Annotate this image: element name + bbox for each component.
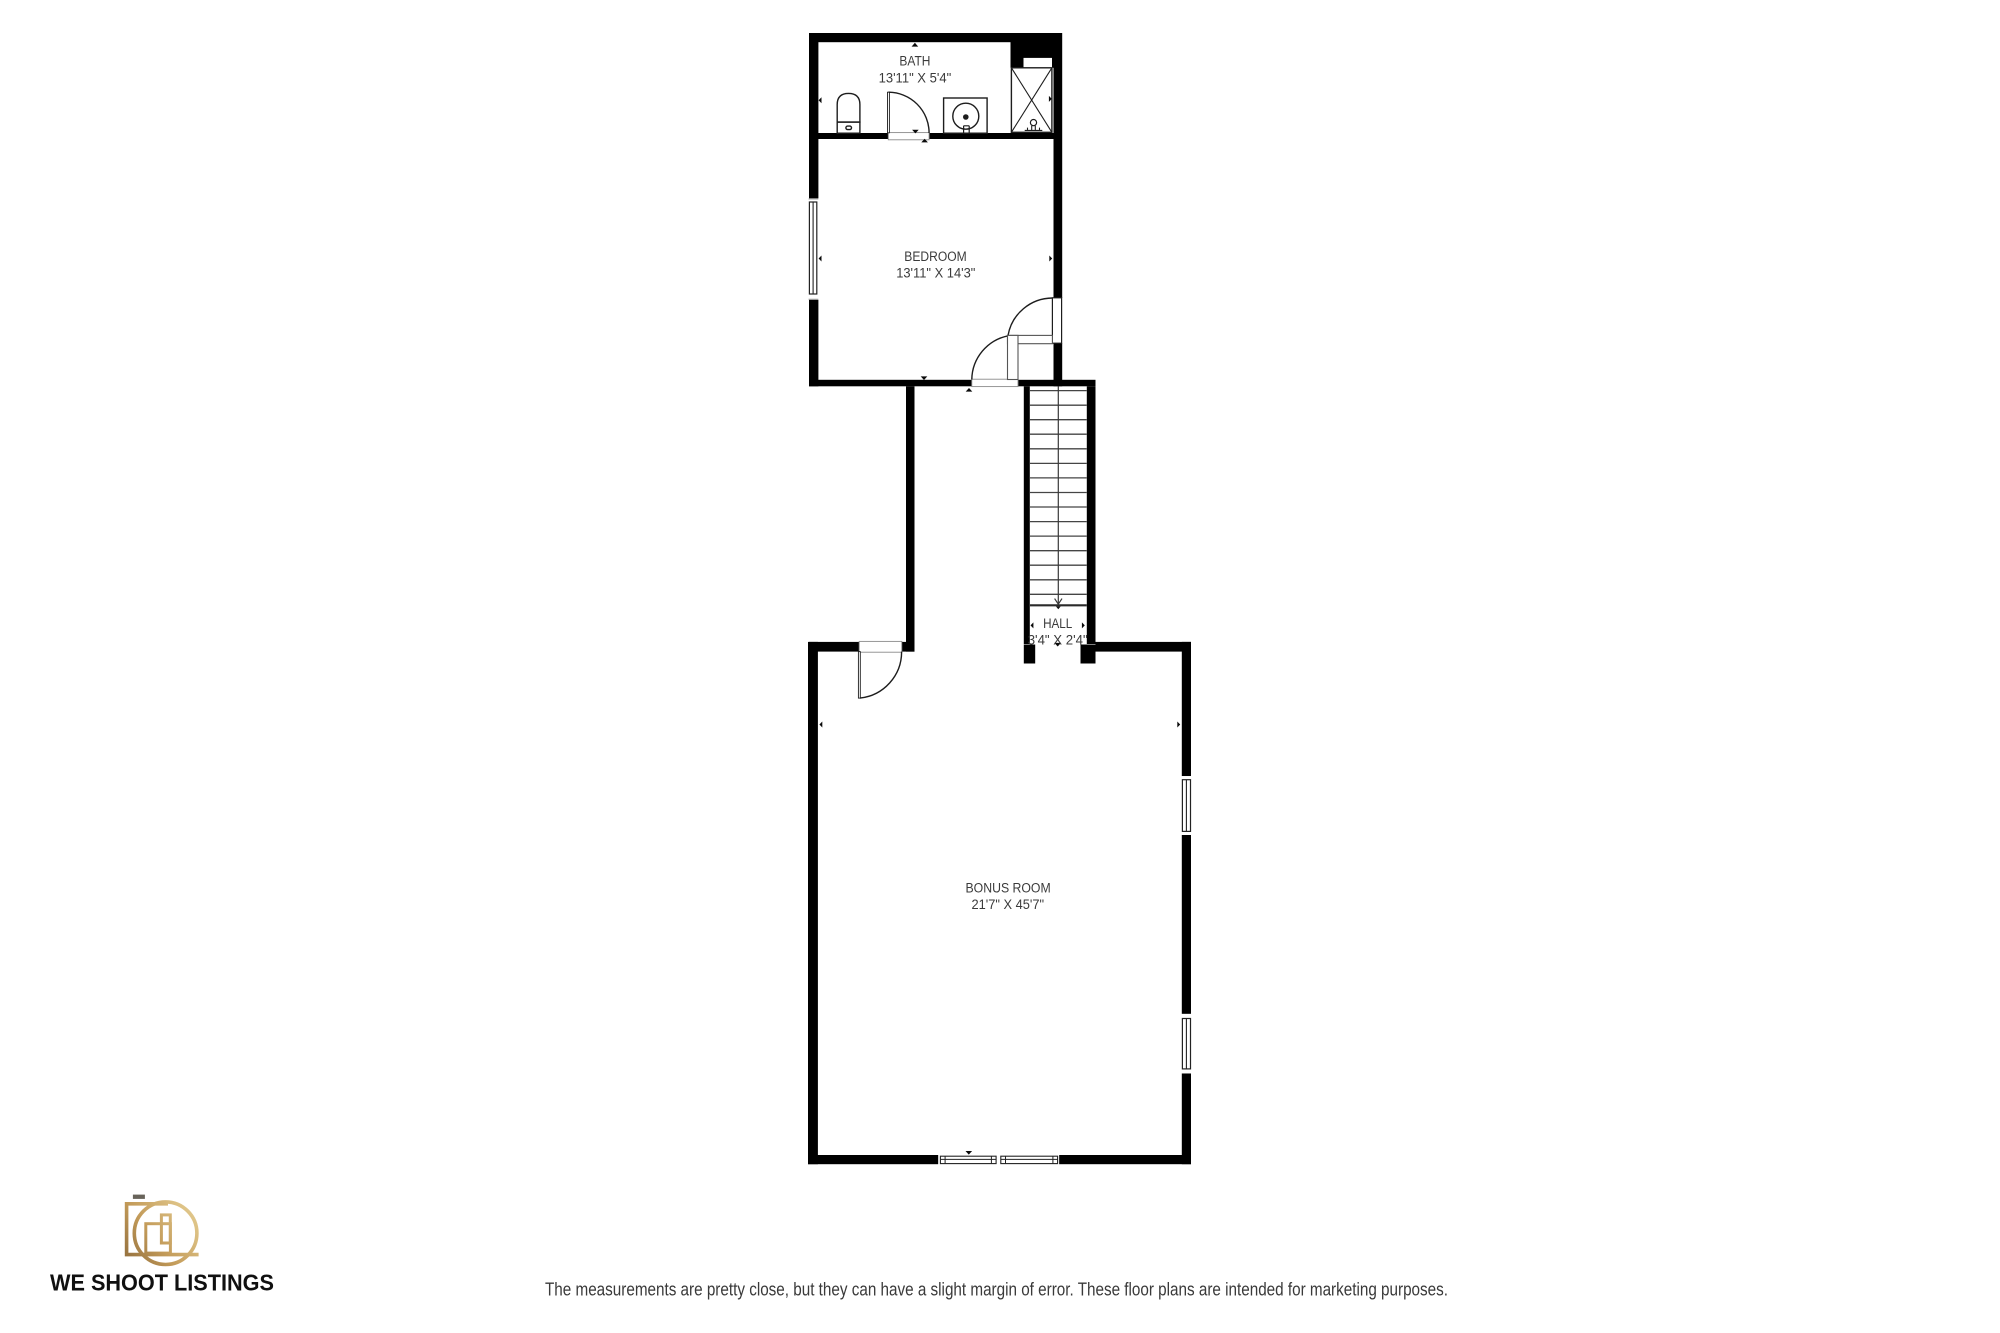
svg-text:WE SHOOT LISTINGS: WE SHOOT LISTINGS [50, 1270, 274, 1296]
svg-text:21'7" X 45'7": 21'7" X 45'7" [972, 897, 1045, 912]
svg-text:BATH: BATH [899, 54, 930, 69]
svg-text:BEDROOM: BEDROOM [904, 249, 966, 264]
svg-text:3'4" X 2'4": 3'4" X 2'4" [1028, 632, 1088, 647]
svg-text:BONUS ROOM: BONUS ROOM [966, 881, 1051, 896]
svg-text:13'11" X 14'3": 13'11" X 14'3" [896, 265, 975, 280]
svg-text:The measurements are pretty cl: The measurements are pretty close, but t… [545, 1278, 1448, 1299]
svg-text:HALL: HALL [1043, 616, 1072, 631]
svg-text:13'11" X 5'4": 13'11" X 5'4" [879, 70, 952, 85]
